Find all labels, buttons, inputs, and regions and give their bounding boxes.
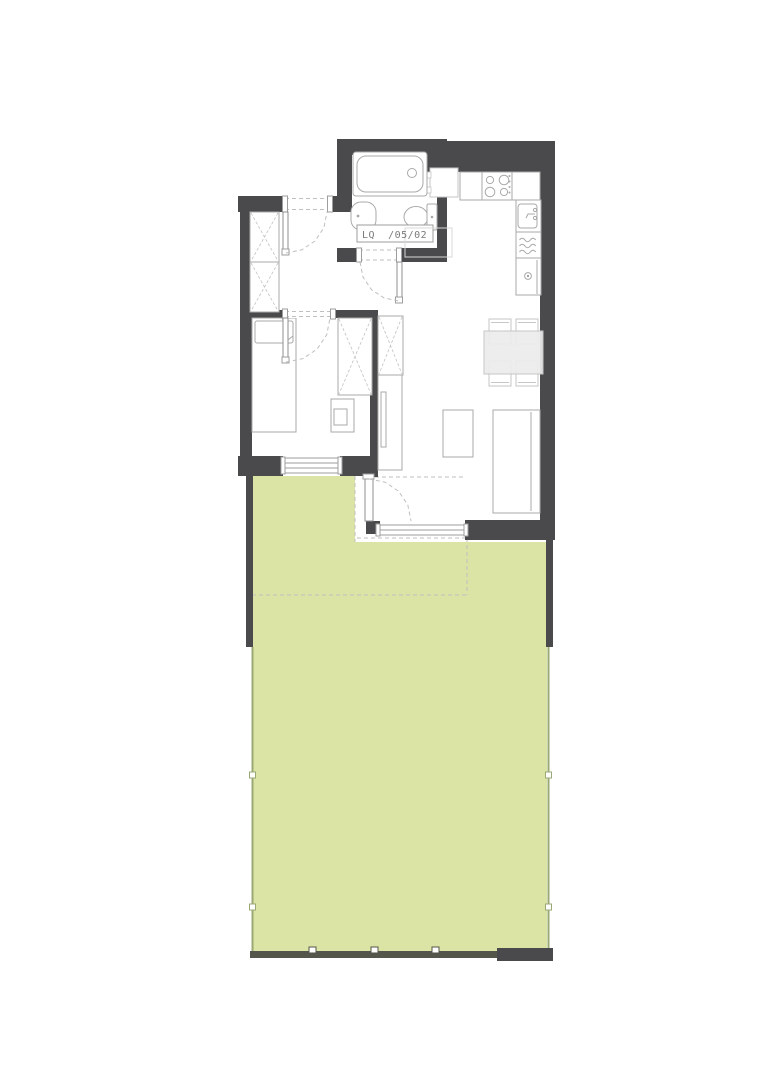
wall-bathroom-bottom-east: [399, 248, 447, 262]
shaft-niche: [430, 168, 458, 197]
bathroom-fixtures: [351, 152, 437, 230]
unit-label: LQ /05/02: [362, 230, 427, 241]
wall-kitchen-north: [447, 141, 555, 172]
fence-post: [309, 947, 316, 953]
kitchen: [460, 172, 541, 295]
fence-post: [546, 772, 552, 778]
coffee-table: [443, 410, 473, 457]
entrance-door-leaf: [283, 212, 288, 253]
floor-plan-canvas: LQ /05/02: [0, 0, 777, 1080]
dining-set: [484, 319, 543, 386]
garden-area: [252, 476, 547, 951]
wall-garden-west: [246, 474, 253, 647]
door-jamb: [283, 196, 288, 212]
entrance-door-swing: [286, 212, 327, 253]
hall-furniture: [250, 212, 279, 312]
bedroom-furniture: [252, 318, 372, 432]
wall-bedroom-south-east: [340, 456, 372, 476]
dining-table: [484, 331, 543, 374]
floor-plan: LQ /05/02: [0, 0, 777, 1080]
door-tip: [363, 474, 374, 479]
stove-knob: [509, 181, 511, 183]
sliding-window-cap: [464, 524, 468, 536]
wall-garden-east: [546, 540, 553, 647]
stove-knob: [509, 186, 511, 188]
door-jamb: [357, 248, 362, 262]
bathroom-door-leaf: [397, 262, 402, 302]
bedroom-window: [283, 458, 340, 473]
tv-cabinet: [378, 375, 402, 470]
fence-post: [546, 904, 552, 910]
wall-north-west: [238, 196, 285, 212]
fence-post: [250, 772, 256, 778]
bathroom-door-swing: [360, 262, 399, 301]
door-jamb: [397, 248, 402, 262]
bed: [252, 318, 296, 432]
bathroom-door-opening: [359, 248, 399, 262]
fence-post: [371, 947, 378, 953]
wall-bathroom-bottom-west: [337, 248, 359, 262]
sink-drain-dot: [357, 215, 360, 218]
balcony-door-leaf: [365, 478, 373, 521]
wall-living-south: [465, 520, 555, 540]
wall-bathroom-right-lower: [437, 195, 447, 248]
fence-post: [432, 947, 439, 953]
wall-north-mid: [330, 196, 352, 212]
wall-bedroom-south-west: [238, 456, 283, 476]
wall-garden-south-east: [497, 948, 553, 961]
washer-dot: [527, 275, 529, 277]
bedroom-window-cap: [281, 457, 285, 474]
balcony-door-swing: [369, 479, 411, 521]
door-jamb: [331, 309, 336, 319]
stove-knob: [509, 175, 511, 177]
fence-post: [250, 904, 256, 910]
door-tip: [282, 249, 289, 255]
toilet-dot: [431, 216, 434, 219]
sliding-window-cap: [376, 524, 380, 536]
bedroom-door-leaf: [283, 318, 288, 362]
bedroom-window-cap: [338, 457, 342, 474]
door-jamb: [328, 196, 333, 212]
toilet-bowl: [404, 207, 428, 228]
sofa: [493, 410, 540, 513]
stove-knob: [509, 192, 511, 194]
